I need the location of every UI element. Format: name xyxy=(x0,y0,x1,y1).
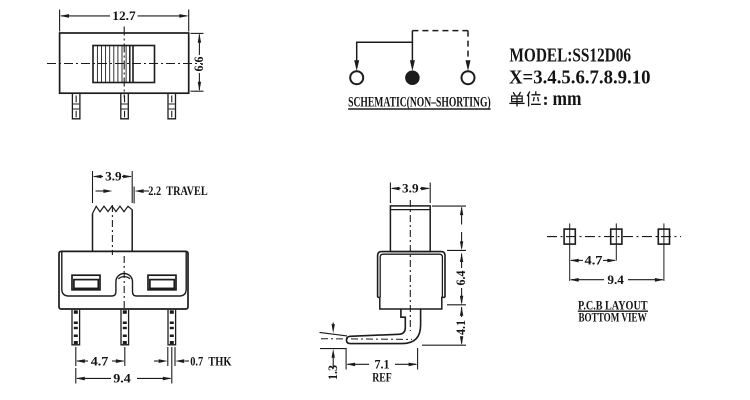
svg-text:9.4: 9.4 xyxy=(607,272,624,287)
svg-text:4.7: 4.7 xyxy=(585,253,604,268)
svg-text:X=3.4.5.6.7.8.9.10: X=3.4.5.6.7.8.9.10 xyxy=(509,67,651,89)
svg-text:2.2 TRAVEL: 2.2 TRAVEL xyxy=(148,183,208,198)
svg-text:BOTTOM VIEW: BOTTOM VIEW xyxy=(578,310,647,324)
svg-text:3.9: 3.9 xyxy=(402,181,419,196)
svg-text:9.4: 9.4 xyxy=(113,371,131,386)
svg-text:4.7: 4.7 xyxy=(91,353,109,368)
svg-text:3.9: 3.9 xyxy=(105,169,122,184)
svg-text:REF: REF xyxy=(372,369,392,384)
svg-text:0.7 THK: 0.7 THK xyxy=(190,354,232,369)
svg-text:1.3: 1.3 xyxy=(325,365,340,380)
svg-text:6.4: 6.4 xyxy=(453,270,468,285)
svg-text:12.7: 12.7 xyxy=(112,8,136,23)
svg-text:6.6: 6.6 xyxy=(191,56,206,71)
svg-text:MODEL:SS12D06: MODEL:SS12D06 xyxy=(510,45,632,67)
svg-text:SCHEMATIC(NON–SHORTING): SCHEMATIC(NON–SHORTING) xyxy=(348,94,491,110)
svg-text:4.1: 4.1 xyxy=(453,320,468,335)
svg-text:mm: mm xyxy=(553,88,582,110)
